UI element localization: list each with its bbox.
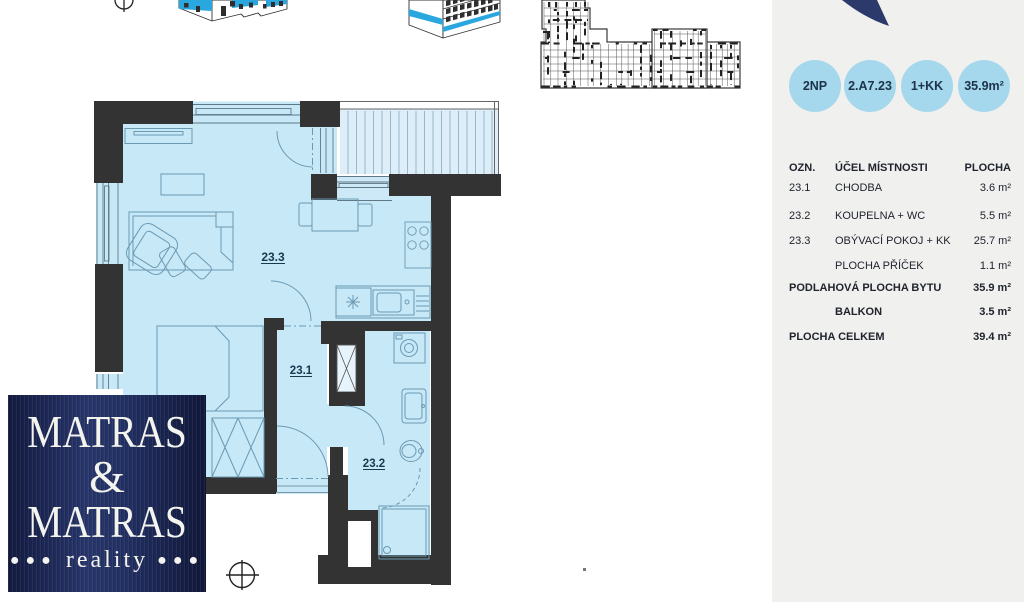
svg-text:23.3: 23.3	[261, 250, 285, 264]
svg-text:23.1: 23.1	[290, 365, 313, 377]
svg-text:23.2: 23.2	[363, 458, 385, 470]
